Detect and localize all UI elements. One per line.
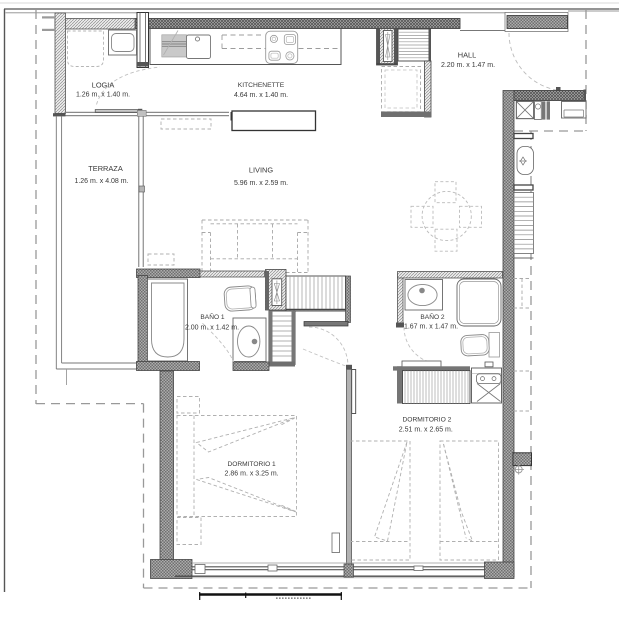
svg-text:2.86 m. x 3.25 m.: 2.86 m. x 3.25 m. [225, 471, 279, 478]
svg-text:DORMITORIO 1: DORMITORIO 1 [227, 461, 276, 468]
svg-text:2.00 m. x 1.42 m.: 2.00 m. x 1.42 m. [185, 324, 239, 331]
svg-text:5.96 m. x 2.59 m.: 5.96 m. x 2.59 m. [234, 180, 288, 187]
svg-text:2.51 m. x 2.65 m.: 2.51 m. x 2.65 m. [399, 427, 453, 434]
svg-text:LIVING: LIVING [249, 166, 273, 175]
svg-text:4.64 m. x 1.40 m.: 4.64 m. x 1.40 m. [234, 92, 288, 99]
svg-text:1.26 m. x 4.08 m.: 1.26 m. x 4.08 m. [74, 178, 128, 185]
svg-text:TERRAZA: TERRAZA [88, 164, 123, 173]
svg-text:1.67 m. x 1.47 m.: 1.67 m. x 1.47 m. [404, 324, 458, 331]
svg-text:HALL: HALL [458, 50, 477, 59]
svg-text:DORMITORIO 2: DORMITORIO 2 [402, 416, 451, 423]
svg-text:KITCHENETTE: KITCHENETTE [238, 82, 285, 89]
svg-text:BAÑO 2: BAÑO 2 [420, 312, 445, 321]
svg-text:2.20 m. x 1.47 m.: 2.20 m. x 1.47 m. [441, 62, 495, 69]
svg-text:1.26 m. x 1.40 m.: 1.26 m. x 1.40 m. [76, 92, 130, 99]
svg-text:BAÑO 1: BAÑO 1 [200, 312, 225, 321]
svg-text:LOGIA: LOGIA [92, 80, 115, 89]
